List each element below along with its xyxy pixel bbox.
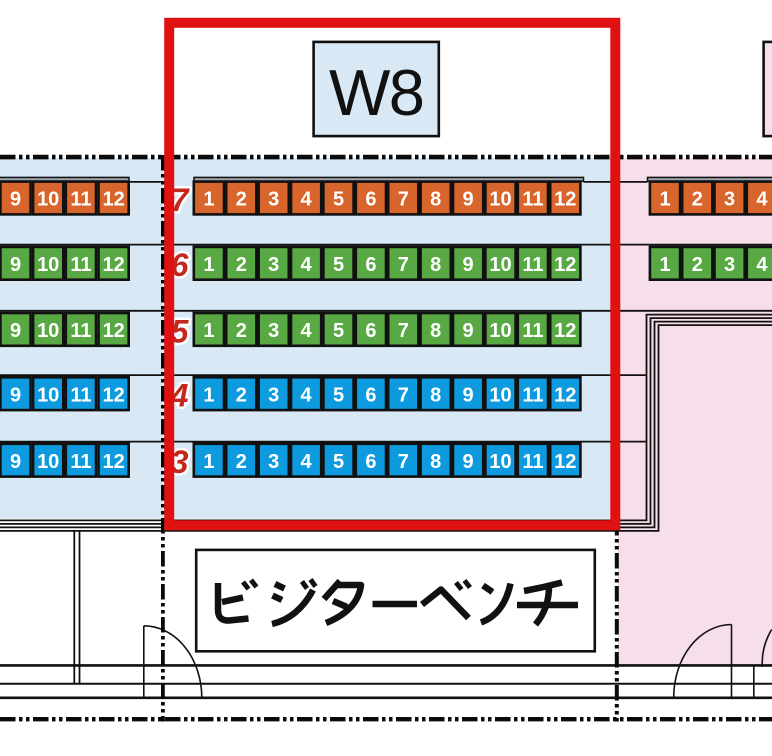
svg-text:7: 7 [398, 189, 409, 211]
svg-text:1: 1 [203, 189, 214, 211]
svg-text:9: 9 [10, 320, 21, 342]
svg-text:5: 5 [333, 254, 344, 276]
svg-text:5: 5 [333, 320, 344, 342]
svg-text:9: 9 [10, 384, 21, 406]
svg-text:4: 4 [301, 384, 313, 406]
svg-text:11: 11 [70, 384, 91, 406]
svg-text:7: 7 [398, 320, 409, 342]
svg-text:W8: W8 [329, 56, 424, 129]
svg-text:10: 10 [489, 189, 511, 211]
svg-text:11: 11 [70, 451, 91, 473]
svg-text:2: 2 [236, 320, 247, 342]
svg-text:11: 11 [70, 189, 91, 211]
svg-text:4: 4 [301, 451, 313, 473]
svg-text:8: 8 [430, 320, 441, 342]
svg-text:5: 5 [333, 189, 344, 211]
svg-text:12: 12 [102, 384, 124, 406]
svg-text:12: 12 [102, 320, 124, 342]
svg-text:12: 12 [554, 451, 576, 473]
svg-text:11: 11 [70, 320, 91, 342]
svg-text:6: 6 [365, 384, 376, 406]
svg-text:12: 12 [102, 451, 124, 473]
svg-text:4: 4 [301, 254, 313, 276]
svg-text:1: 1 [203, 320, 214, 342]
svg-text:10: 10 [37, 320, 59, 342]
svg-text:2: 2 [236, 254, 247, 276]
svg-text:4: 4 [301, 320, 313, 342]
svg-text:12: 12 [554, 320, 576, 342]
svg-text:10: 10 [489, 320, 511, 342]
svg-text:9: 9 [10, 189, 21, 211]
svg-text:11: 11 [70, 254, 91, 276]
svg-text:10: 10 [489, 254, 511, 276]
svg-text:3: 3 [268, 384, 279, 406]
svg-text:9: 9 [10, 254, 21, 276]
svg-text:12: 12 [102, 254, 124, 276]
svg-text:5: 5 [333, 451, 344, 473]
svg-text:3: 3 [724, 189, 735, 211]
svg-text:6: 6 [365, 451, 376, 473]
svg-text:10: 10 [37, 189, 59, 211]
svg-text:9: 9 [463, 384, 474, 406]
svg-text:10: 10 [37, 451, 59, 473]
svg-text:8: 8 [430, 384, 441, 406]
svg-text:11: 11 [522, 384, 543, 406]
svg-text:4: 4 [756, 189, 768, 211]
svg-text:10: 10 [37, 254, 59, 276]
svg-text:2: 2 [236, 189, 247, 211]
svg-text:1: 1 [203, 384, 214, 406]
svg-text:2: 2 [692, 254, 703, 276]
svg-text:3: 3 [268, 320, 279, 342]
svg-text:12: 12 [554, 254, 576, 276]
svg-text:3: 3 [268, 451, 279, 473]
svg-text:5: 5 [333, 384, 344, 406]
svg-text:1: 1 [203, 254, 214, 276]
svg-text:6: 6 [365, 189, 376, 211]
svg-text:12: 12 [102, 189, 124, 211]
svg-text:6: 6 [365, 320, 376, 342]
svg-text:3: 3 [268, 254, 279, 276]
svg-text:11: 11 [522, 451, 543, 473]
svg-text:10: 10 [489, 384, 511, 406]
svg-text:11: 11 [522, 320, 543, 342]
svg-text:1: 1 [203, 451, 214, 473]
svg-text:9: 9 [463, 254, 474, 276]
svg-text:11: 11 [522, 254, 543, 276]
svg-text:7: 7 [398, 254, 409, 276]
svg-text:8: 8 [430, 451, 441, 473]
svg-text:2: 2 [236, 384, 247, 406]
svg-text:4: 4 [756, 254, 768, 276]
svg-text:8: 8 [430, 189, 441, 211]
svg-text:9: 9 [463, 451, 474, 473]
svg-text:8: 8 [430, 254, 441, 276]
svg-text:4: 4 [301, 189, 313, 211]
svg-text:7: 7 [398, 384, 409, 406]
svg-text:3: 3 [724, 254, 735, 276]
svg-text:6: 6 [365, 254, 376, 276]
svg-text:10: 10 [489, 451, 511, 473]
svg-text:3: 3 [268, 189, 279, 211]
svg-text:9: 9 [463, 320, 474, 342]
svg-text:11: 11 [522, 189, 543, 211]
svg-text:2: 2 [692, 189, 703, 211]
svg-text:2: 2 [236, 451, 247, 473]
svg-text:12: 12 [554, 189, 576, 211]
svg-text:1: 1 [659, 189, 670, 211]
svg-text:7: 7 [398, 451, 409, 473]
svg-text:9: 9 [463, 189, 474, 211]
svg-text:1: 1 [659, 254, 670, 276]
svg-text:10: 10 [37, 384, 59, 406]
svg-text:12: 12 [554, 384, 576, 406]
svg-text:9: 9 [10, 451, 21, 473]
